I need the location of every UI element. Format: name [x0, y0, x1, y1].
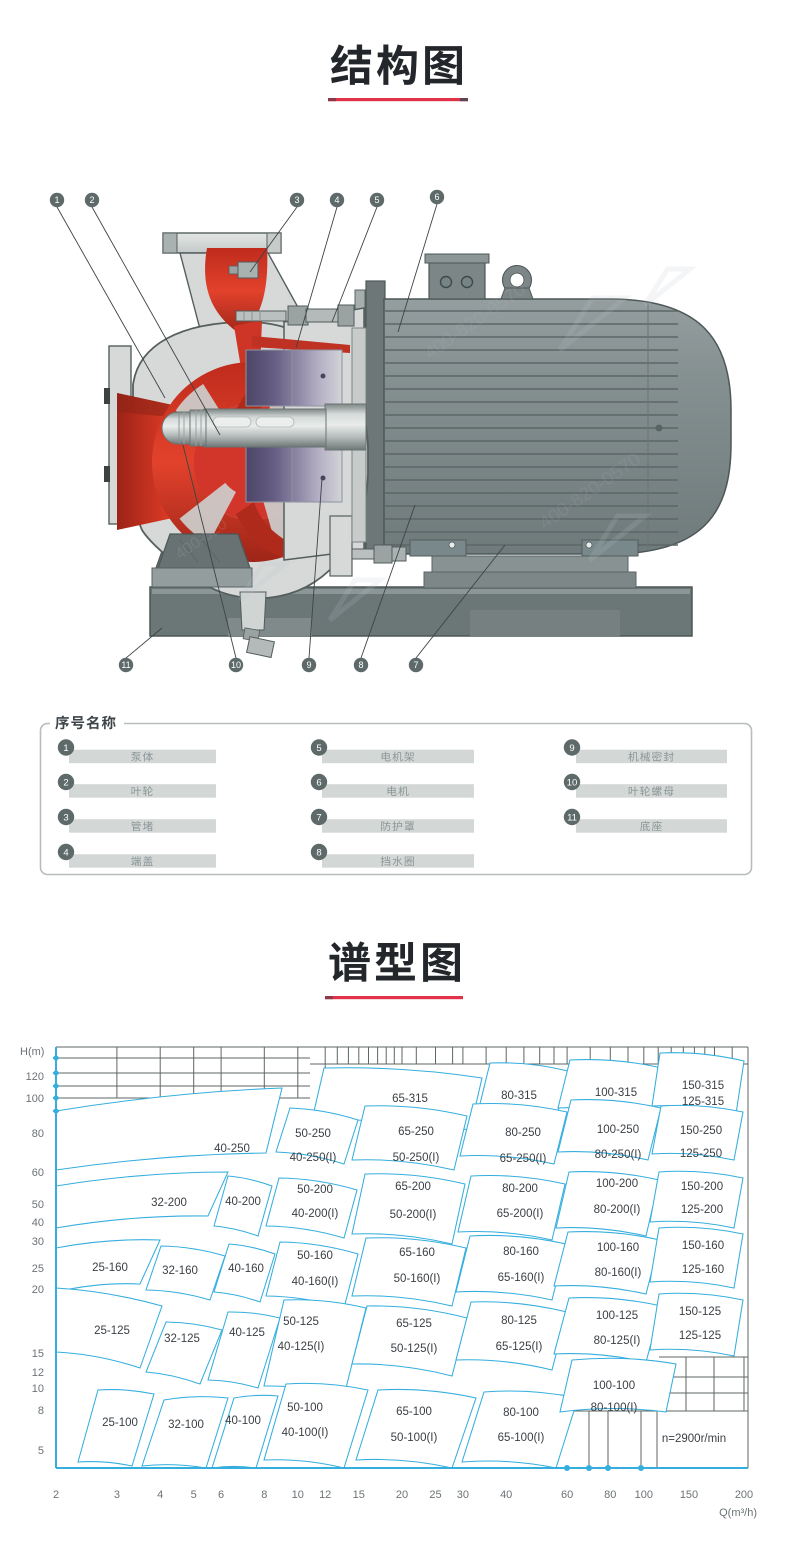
svg-text:150-200: 150-200	[681, 1181, 723, 1193]
svg-text:10: 10	[32, 1383, 44, 1395]
svg-text:50-200: 50-200	[297, 1184, 333, 1196]
svg-text:65-250(I): 65-250(I)	[500, 1153, 547, 1165]
svg-text:65-200: 65-200	[395, 1181, 431, 1193]
svg-text:50-250: 50-250	[295, 1128, 331, 1140]
svg-text:40-100(I): 40-100(I)	[282, 1427, 329, 1439]
svg-text:100-125: 100-125	[596, 1310, 638, 1322]
svg-text:40-160(I): 40-160(I)	[292, 1276, 339, 1288]
svg-text:40-250(I): 40-250(I)	[290, 1152, 337, 1164]
svg-text:5: 5	[374, 195, 379, 205]
svg-text:65-250: 65-250	[398, 1126, 434, 1138]
svg-text:65-100: 65-100	[396, 1406, 432, 1418]
svg-text:8: 8	[358, 660, 363, 670]
svg-text:100: 100	[26, 1093, 44, 1105]
svg-text:7: 7	[413, 660, 418, 670]
svg-text:150-315: 150-315	[682, 1080, 724, 1092]
svg-text:25-100: 25-100	[102, 1417, 138, 1429]
svg-text:60: 60	[32, 1167, 44, 1179]
svg-text:100-160: 100-160	[597, 1242, 639, 1254]
svg-text:50-160: 50-160	[297, 1250, 333, 1262]
svg-text:40-200(I): 40-200(I)	[292, 1208, 339, 1220]
svg-text:40-100: 40-100	[225, 1415, 261, 1427]
svg-text:65-100(I): 65-100(I)	[498, 1432, 545, 1444]
svg-text:30: 30	[457, 1489, 469, 1501]
svg-text:80-125(I): 80-125(I)	[594, 1335, 641, 1347]
svg-text:80-100: 80-100	[503, 1407, 539, 1419]
svg-text:11: 11	[567, 812, 577, 823]
svg-text:125-200: 125-200	[681, 1204, 723, 1216]
svg-text:125-125: 125-125	[679, 1330, 721, 1342]
svg-text:7: 7	[316, 812, 321, 823]
svg-text:2: 2	[53, 1489, 59, 1501]
svg-text:8: 8	[261, 1489, 267, 1501]
svg-text:40-200: 40-200	[225, 1196, 261, 1208]
svg-text:50: 50	[32, 1199, 44, 1211]
svg-text:65-200(I): 65-200(I)	[497, 1208, 544, 1220]
svg-text:5: 5	[38, 1445, 44, 1457]
svg-text:40-250: 40-250	[214, 1143, 250, 1155]
svg-text:6: 6	[316, 777, 321, 788]
svg-text:32-100: 32-100	[168, 1419, 204, 1431]
svg-text:50-125(I): 50-125(I)	[391, 1343, 438, 1355]
svg-text:50-250(I): 50-250(I)	[393, 1152, 440, 1164]
svg-text:65-160(I): 65-160(I)	[498, 1272, 545, 1284]
svg-text:100: 100	[635, 1489, 653, 1501]
svg-text:Q(m³/h): Q(m³/h)	[719, 1507, 757, 1519]
svg-text:4: 4	[157, 1489, 163, 1501]
svg-text:25-160: 25-160	[92, 1262, 128, 1274]
svg-text:4: 4	[63, 847, 68, 858]
svg-text:125-250: 125-250	[680, 1148, 722, 1160]
svg-text:150-160: 150-160	[682, 1240, 724, 1252]
svg-text:5: 5	[191, 1489, 197, 1501]
svg-text:40-125(I): 40-125(I)	[278, 1341, 325, 1353]
svg-text:11: 11	[121, 660, 130, 670]
svg-text:1: 1	[54, 195, 59, 205]
svg-text:12: 12	[32, 1367, 44, 1379]
svg-text:40: 40	[32, 1217, 44, 1229]
svg-text:50-160(I): 50-160(I)	[394, 1273, 441, 1285]
svg-text:2: 2	[63, 777, 68, 788]
svg-text:80-200: 80-200	[502, 1183, 538, 1195]
svg-text:150-125: 150-125	[679, 1306, 721, 1318]
svg-text:80-160(I): 80-160(I)	[595, 1267, 642, 1279]
svg-text:20: 20	[396, 1489, 408, 1501]
svg-text:3: 3	[63, 812, 68, 823]
svg-text:15: 15	[353, 1489, 365, 1501]
svg-text:2: 2	[89, 195, 94, 205]
svg-text:9: 9	[306, 660, 311, 670]
svg-text:65-315: 65-315	[392, 1093, 428, 1105]
svg-text:60: 60	[561, 1489, 573, 1501]
svg-text:8: 8	[316, 847, 321, 858]
svg-text:100-100: 100-100	[593, 1380, 635, 1392]
svg-text:125-160: 125-160	[682, 1264, 724, 1276]
svg-text:80-315: 80-315	[501, 1090, 537, 1102]
svg-text:80: 80	[32, 1128, 44, 1140]
svg-text:20: 20	[32, 1284, 44, 1296]
svg-text:9: 9	[569, 743, 574, 754]
svg-text:6: 6	[434, 192, 439, 202]
svg-text:50-100(I): 50-100(I)	[391, 1432, 438, 1444]
svg-text:8: 8	[38, 1405, 44, 1417]
svg-text:32-160: 32-160	[162, 1265, 198, 1277]
svg-text:40-160: 40-160	[228, 1263, 264, 1275]
svg-text:32-200: 32-200	[151, 1197, 187, 1209]
svg-text:80-200(I): 80-200(I)	[594, 1204, 641, 1216]
svg-text:40: 40	[500, 1489, 512, 1501]
svg-text:80-100(I): 80-100(I)	[591, 1402, 638, 1414]
svg-text:H(m): H(m)	[20, 1046, 44, 1058]
svg-text:50-125: 50-125	[283, 1316, 319, 1328]
svg-text:3: 3	[114, 1489, 120, 1501]
svg-text:25-125: 25-125	[94, 1325, 130, 1337]
svg-text:150-250: 150-250	[680, 1125, 722, 1137]
svg-text:80-125: 80-125	[501, 1315, 537, 1327]
svg-text:15: 15	[32, 1348, 44, 1360]
svg-text:30: 30	[32, 1236, 44, 1248]
svg-text:150: 150	[680, 1489, 698, 1501]
svg-text:120: 120	[26, 1071, 44, 1083]
svg-text:25: 25	[429, 1489, 441, 1501]
svg-text:65-160: 65-160	[399, 1247, 435, 1259]
svg-text:10: 10	[292, 1489, 304, 1501]
svg-text:12: 12	[319, 1489, 331, 1501]
svg-text:50-100: 50-100	[287, 1402, 323, 1414]
svg-text:65-125: 65-125	[396, 1318, 432, 1330]
svg-text:80-250(I): 80-250(I)	[595, 1149, 642, 1161]
svg-text:6: 6	[218, 1489, 224, 1501]
svg-text:4: 4	[334, 195, 339, 205]
svg-text:80: 80	[604, 1489, 616, 1501]
svg-text:100-200: 100-200	[596, 1178, 638, 1190]
svg-text:100-315: 100-315	[595, 1087, 637, 1099]
svg-text:100-250: 100-250	[597, 1124, 639, 1136]
svg-text:65-125(I): 65-125(I)	[496, 1341, 543, 1353]
svg-text:5: 5	[316, 743, 321, 754]
svg-text:200: 200	[735, 1489, 753, 1501]
svg-text:3: 3	[294, 195, 299, 205]
svg-text:32-125: 32-125	[164, 1333, 200, 1345]
svg-text:25: 25	[32, 1263, 44, 1275]
svg-text:1: 1	[63, 743, 68, 754]
svg-text:40-125: 40-125	[229, 1327, 265, 1339]
svg-text:80-160: 80-160	[503, 1246, 539, 1258]
svg-text:80-250: 80-250	[505, 1127, 541, 1139]
svg-text:n=2900r/min: n=2900r/min	[662, 1433, 726, 1445]
svg-text:10: 10	[231, 660, 241, 670]
svg-text:10: 10	[567, 777, 578, 788]
svg-text:50-200(I): 50-200(I)	[390, 1209, 437, 1221]
